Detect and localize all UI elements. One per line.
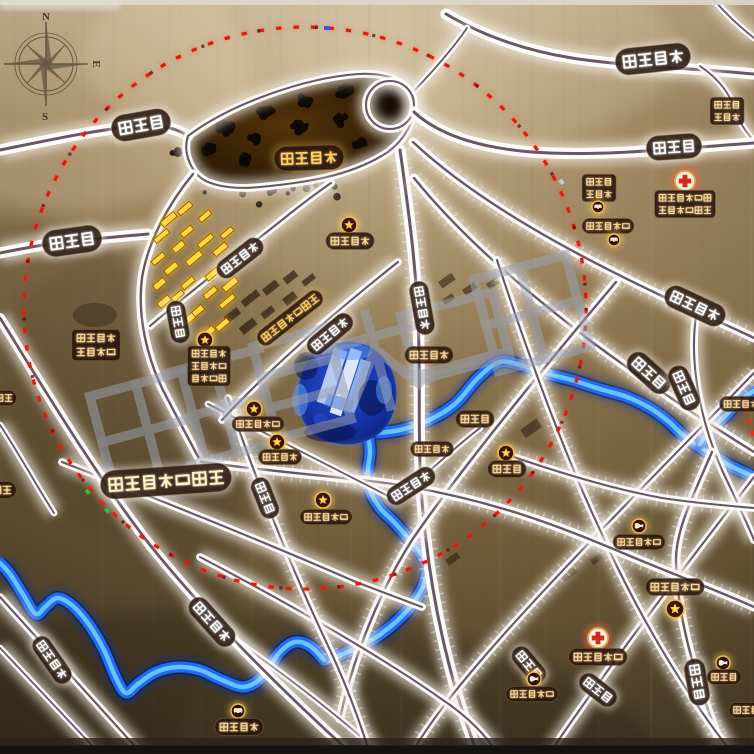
svg-text:E: E	[90, 60, 102, 67]
svg-text:N: N	[42, 11, 50, 23]
svg-text:S: S	[42, 111, 48, 123]
